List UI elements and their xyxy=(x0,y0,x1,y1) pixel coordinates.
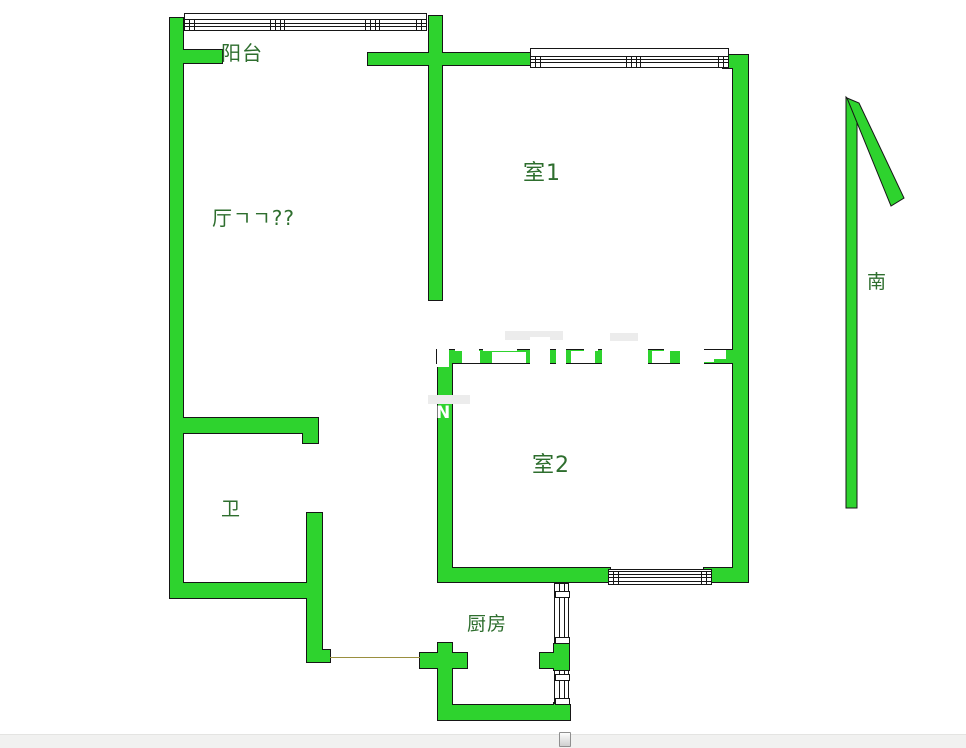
floorplan-viewer: 阳台厅ㄱㄱ??室1室2卫厨房南N xyxy=(0,0,966,748)
horizontal-scrollbar-track[interactable] xyxy=(0,734,966,748)
horizontal-scrollbar-thumb[interactable] xyxy=(559,732,571,747)
compass-vertical-line xyxy=(846,97,857,508)
south-compass-arrow xyxy=(0,0,966,732)
